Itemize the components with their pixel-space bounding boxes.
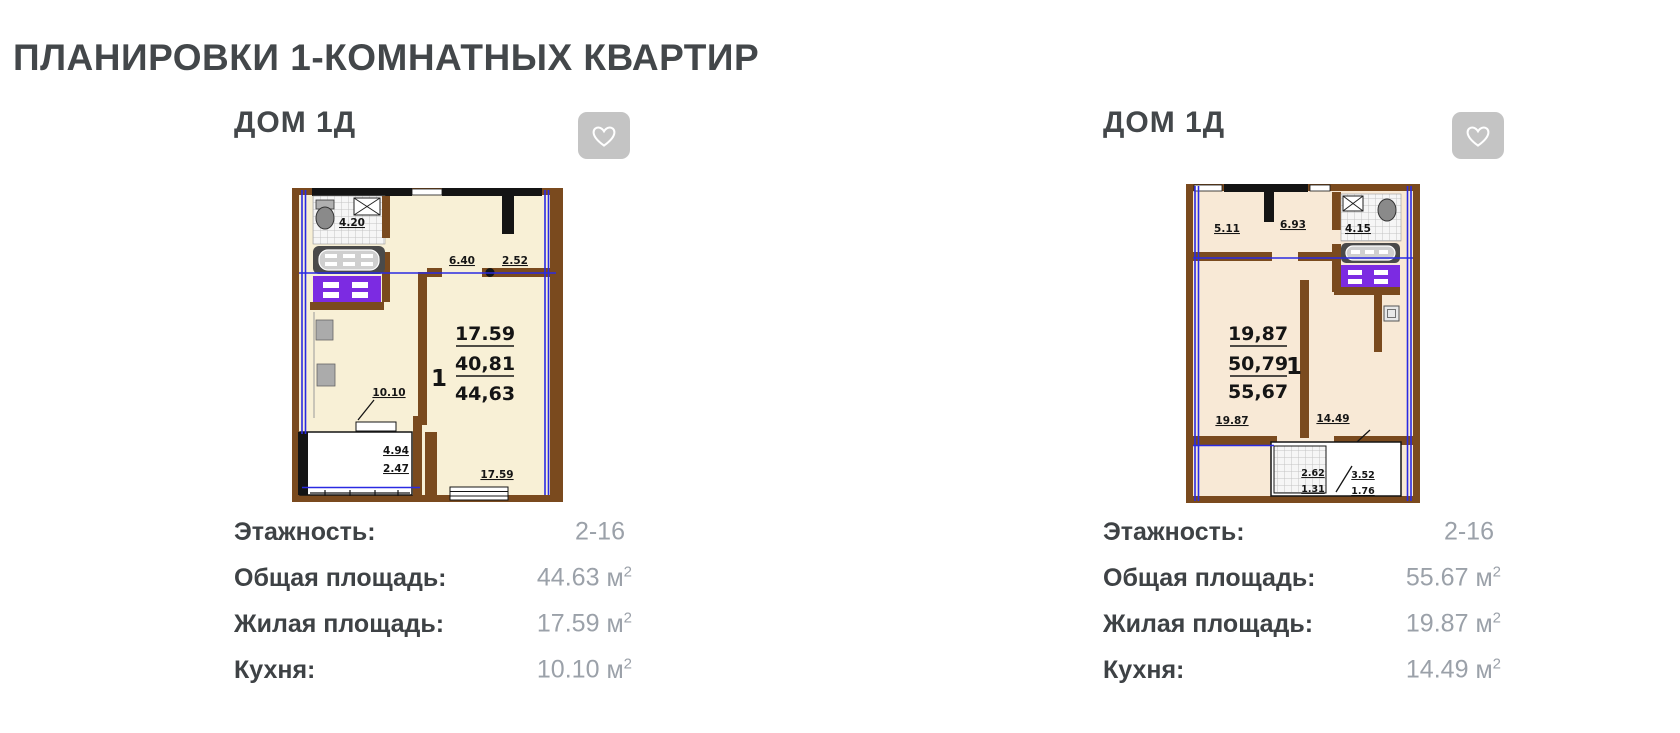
detail-label: Жилая площадь:: [1103, 610, 1313, 639]
detail-row: Жилая площадь: 17.59м2: [234, 601, 632, 647]
plan1-unit-number: 1: [431, 366, 447, 392]
plan2-washing-machine: [1334, 265, 1400, 295]
plan2-balcony-a-top: 2.62: [1301, 468, 1324, 479]
card2-details: Этажность: 2-16 Общая площадь: 55.67м2 Ж…: [1103, 509, 1501, 693]
plan2-room-bottom-label: 19.87: [1215, 415, 1248, 427]
detail-value: 2-16: [575, 517, 632, 546]
detail-row: Жилая площадь: 19.87м2: [1103, 601, 1501, 647]
detail-row: Общая площадь: 44.63м2: [234, 555, 632, 601]
detail-row: Этажность: 2-16: [234, 509, 632, 555]
plan2-living-area: 19,87: [1228, 323, 1288, 345]
plan1-living-mid-area: 40,81: [455, 353, 515, 375]
detail-row: Общая площадь: 55.67м2: [1103, 555, 1501, 601]
card1-title: ДОМ 1Д: [234, 106, 356, 140]
detail-row: Кухня: 10.10м2: [234, 647, 632, 693]
heart-icon: [1464, 123, 1492, 149]
detail-label: Кухня:: [1103, 656, 1184, 685]
heart-icon: [590, 123, 618, 149]
card2-favorite-button[interactable]: [1452, 112, 1504, 159]
detail-label: Кухня:: [234, 656, 315, 685]
plan1-bath-area-label: 4.20: [339, 217, 365, 229]
plan1-balcony-dim-bottom: 2.47: [383, 463, 409, 475]
plan1-kitchen-area-label: 10.10: [372, 387, 405, 399]
plan1-living-area: 17.59: [455, 323, 515, 345]
plan2-living-mid-area: 50,79: [1228, 353, 1288, 375]
plan2-unit-number: 1: [1286, 354, 1302, 380]
card2-title: ДОМ 1Д: [1103, 106, 1225, 140]
plan2-shaft: [1384, 306, 1399, 321]
detail-value: 10.10м2: [537, 655, 632, 684]
plan1-room-bottom-label: 17.59: [480, 469, 513, 481]
card2-floor-plan[interactable]: 5.11 6.93 4.15 1 19,87 50,79 55,67 19.87…: [1186, 184, 1420, 503]
plan2-balcony-a-bottom: 1.31: [1301, 484, 1324, 495]
detail-value: 44.63м2: [537, 563, 632, 592]
detail-value: 2-16: [1444, 517, 1501, 546]
plan1-bottom-window: [450, 487, 508, 500]
plan2-balcony-b-top: 3.52: [1351, 470, 1374, 481]
detail-label: Этажность:: [1103, 518, 1245, 547]
plan1-washing-machine: [310, 276, 384, 310]
detail-label: Общая площадь:: [234, 564, 447, 593]
detail-value: 55.67м2: [1406, 563, 1501, 592]
plan2-kitchen-area-label: 14.49: [1316, 413, 1349, 425]
plan2-bath-area-label: 4.15: [1345, 223, 1371, 235]
card1-details: Этажность: 2-16 Общая площадь: 44.63м2 Ж…: [234, 509, 632, 693]
plan1-bathtub: [313, 246, 385, 274]
detail-value: 19.87м2: [1406, 609, 1501, 638]
card1-favorite-button[interactable]: [578, 112, 630, 159]
detail-label: Этажность:: [234, 518, 376, 547]
plan1-top-window: [412, 189, 442, 195]
card1-floor-plan[interactable]: 4.20 10.10 6.40 2.52 1 17.59 40,81: [292, 188, 563, 502]
plan2-bathtub: [1341, 243, 1400, 263]
detail-value: 17.59м2: [537, 609, 632, 638]
plan2-door-gap: [1272, 252, 1298, 261]
plan2-dim-top-a: 5.11: [1214, 223, 1240, 235]
plan1-dim-top-b: 2.52: [502, 255, 528, 267]
detail-label: Жилая площадь:: [234, 610, 444, 639]
plan2-balcony: [1271, 442, 1401, 496]
plan2-balcony-b-bottom: 1.76: [1351, 486, 1375, 497]
plan2-top-window-right: [1310, 185, 1330, 191]
detail-row: Кухня: 14.49м2: [1103, 647, 1501, 693]
plan1-total-area: 44,63: [455, 383, 515, 405]
plan1-balcony-dim-top: 4.94: [383, 445, 409, 457]
detail-row: Этажность: 2-16: [1103, 509, 1501, 555]
plan2-dim-top-b: 6.93: [1280, 219, 1306, 231]
page-title: ПЛАНИРОВКИ 1-КОМНАТНЫХ КВАРТИР: [13, 37, 759, 79]
plan2-total-area: 55,67: [1228, 381, 1288, 403]
detail-label: Общая площадь:: [1103, 564, 1316, 593]
plan1-dim-top-a: 6.40: [449, 255, 475, 267]
detail-value: 14.49м2: [1406, 655, 1501, 684]
